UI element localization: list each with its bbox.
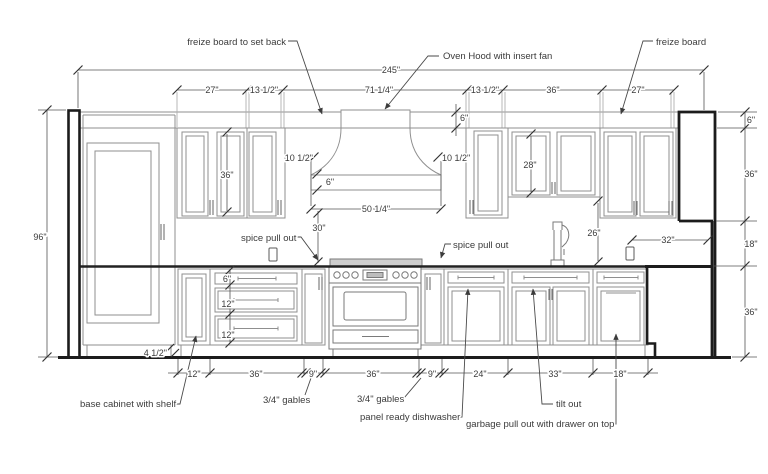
dim-drawer-6: 6" [223,274,231,284]
dim-base-9-right: 9" [428,369,436,379]
label-base-shelf: base cabinet with shelf [80,399,176,410]
dim-hood-width: 50 1/4" [362,204,390,214]
dim-upper-13half-left: 13 1/2" [250,85,278,95]
dim-hood-drop-left: 10 1/2" [285,153,313,163]
dim-upper-27-right: 27" [631,85,644,95]
faucet [551,222,569,266]
pantry-door [87,143,159,323]
narrow-upper-handle [470,200,473,214]
label-gables-left: 3/4" gables [263,395,310,406]
dim-toe-kick: 4 1/2" [144,348,167,358]
wall-right [679,112,715,357]
upper-cabinets-right [466,128,676,218]
dim-base-24: 24" [473,369,486,379]
kitchen-elevation-drawing: 245" 27" 13 1/2" 71 1/4" 13 1/2" 36" 27"… [0,0,768,474]
dim-base-18: 18" [613,369,626,379]
dim-hood-band-6: 6" [326,177,334,187]
dim-right-6: 6" [747,115,755,125]
dim-upper-36: 36" [546,85,559,95]
label-freize-setback: freize board to set back [187,37,286,48]
dim-upper-71quarter: 71 1/4" [365,85,393,95]
wall-left [69,111,80,358]
base-cab-12 [178,269,210,345]
gable-posts [177,92,674,128]
dim-base-12: 12" [187,369,200,379]
dim-door-36: 36" [220,170,233,180]
dim-upper-13half-right: 13 1/2" [471,85,499,95]
label-garbage: garbage pull out with drawer on top [466,419,614,430]
dishwasher-cabinet [444,269,508,345]
pantry-cabinet [83,115,175,357]
label-spice-left: spice pull out [241,233,297,244]
counter-end-panel [647,268,655,357]
pantry-door-panel [95,151,151,315]
dim-drawer-12a: 12" [221,299,234,309]
dim-opening-32: 32" [661,235,674,245]
dim-right-18: 18" [744,239,757,249]
dim-base-33: 33" [548,369,561,379]
label-spice-right: spice pull out [453,240,509,251]
dim-door-28: 28" [523,160,536,170]
dim-counter-26: 26" [587,228,600,238]
dim-hood-counter-30: 30" [312,223,325,233]
label-dishwasher: panel ready dishwasher [360,412,460,423]
range [329,259,422,356]
label-tilt-out: tilt out [556,399,582,410]
dim-height-96: 96" [33,232,46,242]
hood-chimney [341,110,410,128]
dim-upper-27-left: 27" [205,85,218,95]
dim-base-36-left: 36" [249,369,262,379]
kitchen-elevation-page: 245" 27" 13 1/2" 71 1/4" 13 1/2" 36" 27"… [0,0,768,474]
label-freize-board: freize board [656,37,706,48]
dim-right-36-upper: 36" [744,169,757,179]
label-gables-right: 3/4" gables [357,394,404,405]
dim-total-width: 245" [382,65,400,75]
sink-upper-handles [552,182,555,194]
dim-drawer-12b: 12" [221,330,234,340]
dim-base-36-range: 36" [366,369,379,379]
outlet-right [626,247,634,260]
dim-hood-drop-right: 10 1/2" [442,153,470,163]
dim-base-9-left: 9" [309,369,317,379]
dim-right-36-lower: 36" [744,307,757,317]
dim-freize-6: 6" [460,113,468,123]
label-oven-hood: Oven Hood with insert fan [443,51,552,62]
pantry-handle [161,224,164,240]
outlet-left [269,248,277,261]
